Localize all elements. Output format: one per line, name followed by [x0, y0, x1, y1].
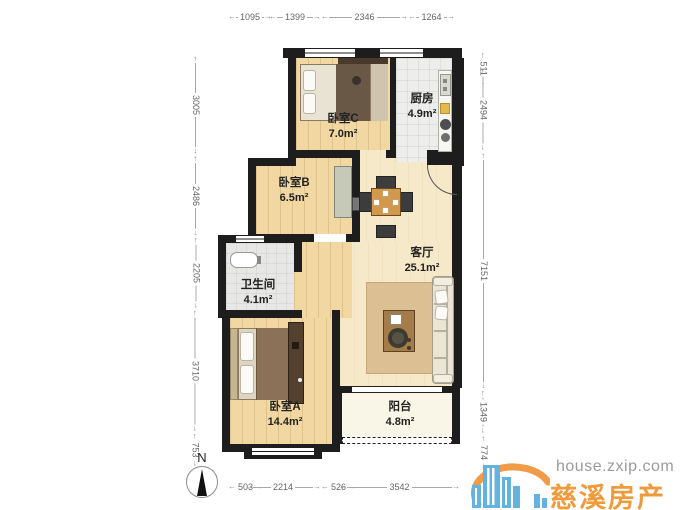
compass-north-label: N	[180, 450, 224, 465]
room-label-bedroom-b: 卧室B 6.5m²	[262, 176, 326, 205]
stove-burner-small	[441, 133, 450, 142]
pillow	[303, 93, 316, 114]
wall	[442, 386, 452, 393]
dim-arrow: ←	[480, 69, 488, 77]
wall	[288, 58, 296, 158]
wall	[288, 150, 352, 158]
dim-arrow: ←	[408, 13, 416, 21]
potted-plant-inner	[392, 332, 404, 344]
floor-hallway	[294, 242, 352, 318]
dining-chair	[400, 192, 413, 212]
dim-bottom-4: ←3542→	[339, 480, 460, 494]
dim-arrow: ←	[245, 483, 253, 491]
room-label-living-room: 客厅 25.1m²	[390, 246, 454, 275]
room-label-bedroom-a: 卧室A 14.4m²	[253, 400, 317, 429]
dim-arrow: ←	[480, 435, 488, 443]
dim-top-1: ←1095→	[228, 10, 269, 24]
bedroom-c-cushion	[352, 76, 361, 85]
dim-arrow: ←	[228, 13, 236, 21]
dim-arrow: →	[400, 13, 408, 21]
wall	[334, 386, 342, 444]
dim-right-4: ←1349→	[477, 390, 491, 435]
wall	[355, 48, 380, 58]
dim-right-3: ←7151→	[477, 152, 491, 390]
wall	[264, 235, 302, 243]
plate	[382, 207, 389, 214]
dim-arrow: →	[193, 302, 201, 310]
window	[305, 48, 355, 58]
dim-arrow: →	[447, 13, 455, 21]
wall	[342, 386, 352, 393]
dim-arrow: ←	[480, 390, 488, 398]
sink-faucet	[443, 79, 447, 83]
sofa-pillow	[434, 289, 449, 305]
pillow	[240, 365, 254, 394]
dim-arrow: ←	[192, 433, 200, 441]
watermark-site-name: 慈溪房产网	[550, 476, 680, 510]
wardrobe-detail	[292, 342, 299, 349]
window	[380, 48, 423, 58]
dim-arrow: ←	[480, 52, 488, 60]
dim-arrow: ←	[321, 483, 329, 491]
dim-arrow: →	[452, 483, 460, 491]
dim-arrow: →	[313, 13, 321, 21]
washbasin-tap	[257, 256, 261, 264]
bedroom-a-wardrobe	[288, 322, 304, 404]
wall	[294, 243, 302, 272]
plate	[382, 190, 389, 197]
bedroom-a-blanket	[256, 328, 288, 400]
dim-arrow: ←	[339, 483, 347, 491]
dim-arrow: ←	[193, 237, 201, 245]
dim-bottom-2: ←2214→	[245, 480, 321, 494]
room-label-bathroom: 卫生间 4.1m²	[226, 278, 290, 307]
wardrobe-knob	[298, 378, 302, 382]
wall	[248, 158, 256, 242]
room-label-kitchen: 厨房 4.9m²	[396, 92, 448, 121]
dim-arrow: ←	[192, 55, 200, 63]
dim-arrow: →	[313, 483, 321, 491]
sofa-cushion-line	[434, 330, 446, 332]
dim-top-3: ←2346→	[321, 10, 408, 24]
watermark-url: house.zxip.com	[556, 458, 674, 476]
dim-bottom-3: ←526→	[321, 480, 339, 494]
dim-arrow: ←	[192, 310, 200, 318]
dim-arrow: ←	[228, 483, 236, 491]
bedroom-b-bed	[334, 166, 352, 218]
table-dot	[407, 338, 411, 342]
dim-arrow: →	[480, 144, 488, 152]
table-tray	[390, 314, 402, 325]
dim-top-2: ←1399→	[269, 10, 321, 24]
dim-arrow: ←	[321, 13, 329, 21]
pillow	[303, 70, 316, 91]
site-logo-buildings-icon	[470, 454, 550, 508]
sofa-pillow	[434, 305, 448, 320]
table-dot	[407, 346, 411, 350]
bedroom-a-headboard	[230, 328, 238, 400]
wall	[452, 388, 460, 444]
wall	[218, 235, 236, 243]
dim-arrow: →	[480, 427, 488, 435]
sofa-armrest	[433, 374, 453, 383]
floor-plan-page: 卧室C 7.0m² 厨房 4.9m² 卧室B 6.5m² 客厅 25.1m² 卫…	[0, 0, 680, 510]
dim-bottom-1: ←503→	[228, 480, 245, 494]
dim-top-4: ←1264→	[408, 10, 455, 24]
sofa-cushion-line	[434, 357, 446, 359]
bathroom-washbasin	[230, 252, 258, 268]
dim-right-1: ←511→	[477, 52, 491, 69]
wall	[218, 243, 226, 318]
bay-window	[252, 447, 314, 456]
room-label-balcony: 阳台 4.8m²	[368, 400, 432, 429]
wall	[386, 150, 396, 158]
dim-arrow: →	[192, 147, 200, 155]
wall	[346, 234, 360, 242]
dim-right-2: ←2494→	[477, 69, 491, 152]
wall	[222, 318, 230, 452]
balcony-railing-dashed	[342, 437, 452, 444]
window	[236, 235, 264, 243]
dim-arrow: →	[192, 425, 200, 433]
wall	[222, 310, 302, 318]
balcony-sliding-door	[342, 386, 452, 393]
plate	[373, 199, 380, 206]
dim-left-3: ←2205→	[190, 237, 204, 310]
dim-left-2: ←2486→	[189, 155, 203, 237]
room-label-bedroom-c: 卧室C 7.0m²	[308, 112, 378, 141]
dining-chair	[376, 225, 396, 238]
dim-left-1: ←3005→	[189, 55, 203, 155]
dim-arrow: ←	[269, 13, 277, 21]
dim-arrow: ←	[480, 152, 488, 160]
wall	[423, 48, 462, 58]
dim-left-4: ←3710→	[189, 310, 203, 433]
wall	[283, 48, 305, 58]
plate	[392, 199, 399, 206]
sofa-armrest	[433, 277, 453, 286]
sink-drain	[443, 87, 447, 91]
dim-arrow: ←	[192, 155, 200, 163]
pillow	[240, 332, 254, 361]
compass-needle-icon	[197, 469, 207, 496]
